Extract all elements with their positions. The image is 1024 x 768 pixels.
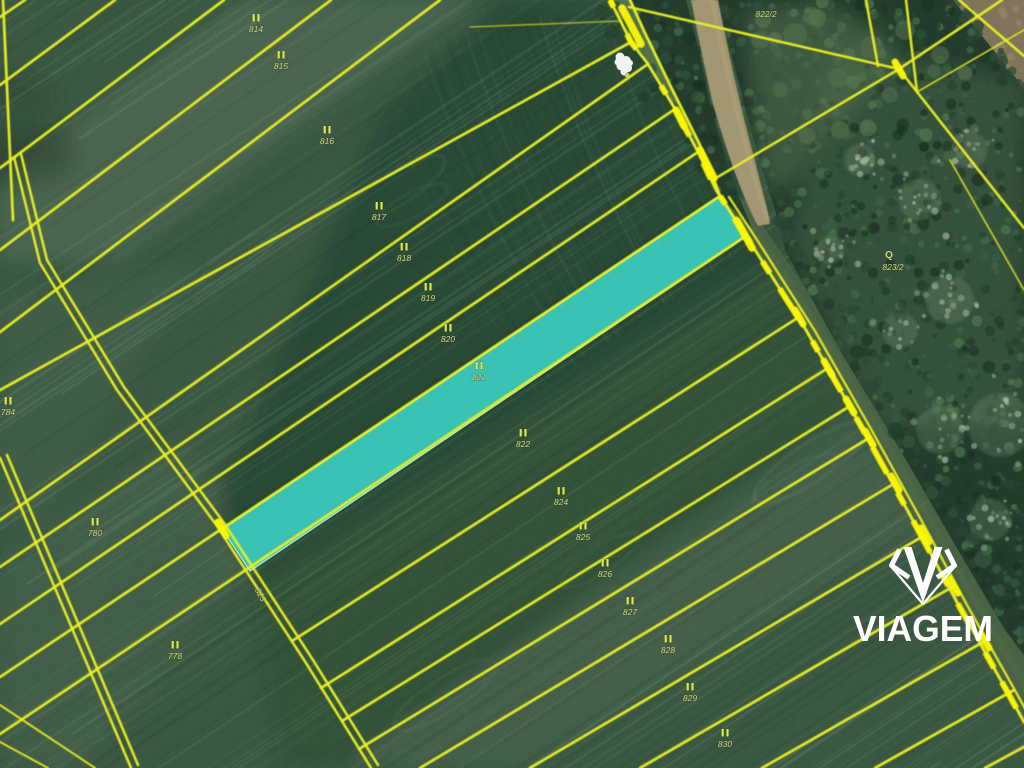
svg-text:VIAGEM: VIAGEM — [853, 608, 993, 649]
